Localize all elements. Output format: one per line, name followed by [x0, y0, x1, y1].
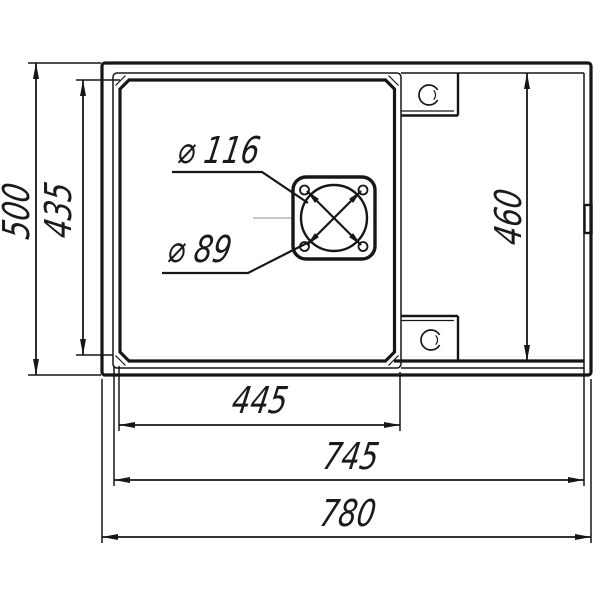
- drain-flange-diameter-label: ⌀ 116: [175, 129, 264, 172]
- arrowhead: [80, 80, 86, 96]
- arrowhead: [80, 339, 86, 355]
- bowl-inner-rim: [120, 80, 395, 361]
- arrowhead: [524, 73, 530, 89]
- arrowhead: [33, 63, 39, 79]
- drain-label-116: ⌀ 116: [172, 129, 308, 203]
- board-width-label: 745: [320, 435, 382, 478]
- board-depth-label: 460: [487, 186, 530, 248]
- clip-hole-icon: [419, 85, 438, 105]
- dim-bowl-depth: 435: [37, 80, 120, 355]
- overall-depth-label: 500: [0, 180, 38, 242]
- bowl: [113, 73, 401, 368]
- arrowhead: [119, 422, 135, 428]
- sink-dimension-drawing: ⌀ 116 ⌀ 89 500 435 460 445: [0, 0, 600, 600]
- bowl-width-label: 445: [229, 379, 291, 422]
- dim-board-width: 745: [114, 368, 584, 486]
- bowl-outer-edge: [113, 73, 401, 368]
- mounting-tab-bottom: [401, 316, 458, 361]
- arrowhead: [568, 477, 584, 483]
- arrowhead: [114, 477, 130, 483]
- technical-drawing-canvas: ⌀ 116 ⌀ 89 500 435 460 445: [0, 0, 600, 600]
- clip-hole-inner-arc: [436, 335, 438, 344]
- leader-line: [172, 172, 308, 203]
- arrowhead: [575, 534, 591, 540]
- bowl-depth-label: 435: [37, 179, 80, 241]
- arrowhead: [384, 422, 400, 428]
- dim-board-depth: 460: [487, 73, 530, 361]
- drain-diameter-label: ⌀ 89: [165, 228, 235, 271]
- drain-label-89: ⌀ 89: [162, 228, 309, 273]
- arrowhead: [33, 359, 39, 375]
- clip-hole-icon: [421, 330, 440, 350]
- drain-assembly: [253, 177, 375, 259]
- overall-width-label: 780: [317, 492, 379, 535]
- overflow-notch: [585, 205, 592, 233]
- clip-hole-inner-arc: [434, 90, 436, 99]
- arrowhead: [524, 345, 530, 361]
- mounting-tab-top: [401, 73, 458, 116]
- arrowhead: [102, 534, 118, 540]
